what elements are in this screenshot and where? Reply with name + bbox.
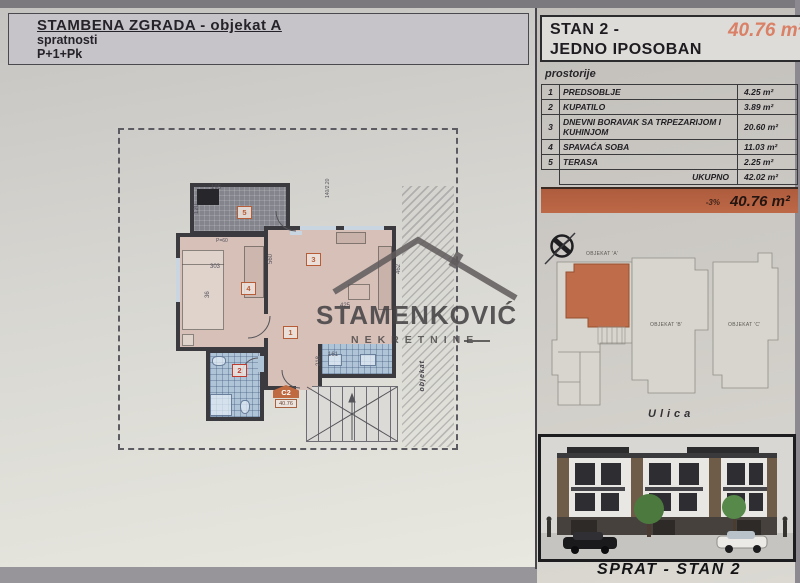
- room-name: TERASA: [560, 155, 738, 170]
- dim-label: 303: [210, 264, 220, 270]
- unit-title-box: STAN 2 - JEDNO IPOSOBAN 40.76 m²: [540, 15, 800, 62]
- table-row: 2 KUPATILO 3.89 m²: [542, 100, 798, 115]
- discount-percent: -3%: [706, 198, 720, 207]
- building-render-drawing: [541, 437, 793, 559]
- total-label: UKUPNO: [560, 170, 738, 185]
- unit-area-highlight: 40.76 m²: [728, 20, 800, 42]
- badge-living: 3: [306, 253, 321, 266]
- dim-label: 195: [211, 185, 221, 191]
- scanned-floor-plan-page: STAMBENA ZGRADA - objekat A spratnosti P…: [0, 0, 800, 583]
- dim-label: 140/2.20: [325, 179, 331, 198]
- window-bedroom: [176, 258, 180, 302]
- dim-label: 218: [316, 356, 322, 366]
- room-area: 3.89 m²: [738, 100, 798, 115]
- building-title: STAMBENA ZGRADA - objekat A: [37, 17, 528, 34]
- room-name: DNEVNI BORAVAK SA TRPEZARIJOM I KUHINJOM: [560, 115, 738, 140]
- dim-label: P=60: [216, 238, 228, 244]
- discounted-area: 40.76 m²: [730, 193, 790, 210]
- total-area: 42.02 m²: [738, 170, 798, 185]
- dim-label: 120: [194, 204, 200, 214]
- total-spacer: [542, 170, 560, 185]
- building-header: STAMBENA ZGRADA - objekat A spratnosti P…: [8, 13, 529, 65]
- nightstand: [182, 334, 194, 346]
- table-row: 4 SPAVAĆA SOBA 11.03 m²: [542, 140, 798, 155]
- room-num: 5: [542, 155, 560, 170]
- room-area: 11.03 m²: [738, 140, 798, 155]
- room-num: 3: [542, 115, 560, 140]
- site-label-building-b: OBJEKAT 'B': [650, 322, 682, 328]
- room-area: 20.60 m²: [738, 115, 798, 140]
- unit-title-line2: JEDNO IPOSOBAN: [550, 40, 800, 60]
- bed: [182, 250, 224, 330]
- dim-label: 462: [396, 264, 402, 274]
- watermark-dash: [464, 340, 490, 342]
- dim-label: 36: [205, 291, 211, 298]
- room-num: 2: [542, 100, 560, 115]
- street-label: Ulica: [648, 408, 694, 420]
- rooms-table: 1 PREDSOBLJE 4.25 m² 2 KUPATILO 3.89 m² …: [541, 84, 798, 185]
- rooms-section-label: prostorije: [545, 68, 596, 80]
- sink: [212, 356, 226, 366]
- window-living-1: [300, 226, 336, 230]
- dim-label: 560: [268, 254, 274, 264]
- badge-terrace: 5: [237, 206, 252, 219]
- sofa: [378, 246, 392, 310]
- building-subtitle: spratnosti: [37, 34, 528, 48]
- panel-divider-line: [535, 8, 537, 569]
- table-row: 3 DNEVNI BORAVAK SA TRPEZARIJOM I KUHINJ…: [542, 115, 798, 140]
- footer-caption: SPRAT - STAN 2: [540, 561, 798, 579]
- bathroom-door-opening: [258, 356, 264, 372]
- room-name: KUPATILO: [560, 100, 738, 115]
- room-name: SPAVAĆA SOBA: [560, 140, 738, 155]
- room-area: 2.25 m²: [738, 155, 798, 170]
- scan-edge-bottom: [0, 567, 537, 583]
- building-render-image: [538, 434, 796, 562]
- table: [348, 284, 370, 300]
- window-living-2: [344, 226, 384, 230]
- side-vertical-text: objekat: [419, 360, 426, 392]
- armchair: [336, 232, 366, 244]
- table-row: 5 TERASA 2.25 m²: [542, 155, 798, 170]
- terrace-door-opening: [290, 231, 302, 235]
- site-label-building-c: OBJEKAT 'C': [728, 322, 761, 328]
- kitchen-stove: [360, 354, 376, 366]
- site-label-building-a: OBJEKAT 'A': [586, 251, 618, 257]
- shower: [210, 394, 232, 416]
- entrance-door-opening: [296, 386, 312, 390]
- room-num: 4: [542, 140, 560, 155]
- bedroom-door-opening: [262, 314, 270, 338]
- room-area: 4.25 m²: [738, 85, 798, 100]
- toilet: [240, 400, 250, 414]
- chimney-shaft: [197, 189, 219, 205]
- badge-hall: 1: [283, 326, 298, 339]
- building-floors: P+1+Pk: [37, 48, 528, 62]
- room-num: 1: [542, 85, 560, 100]
- staircase: [306, 386, 398, 442]
- badge-bathroom: 2: [232, 364, 247, 377]
- table-total-row: UKUPNO 42.02 m²: [542, 170, 798, 185]
- unit-code-area: 40.76: [275, 399, 297, 408]
- dim-label: 161: [328, 352, 338, 358]
- discount-bar: -3% 40.76 m²: [541, 187, 798, 213]
- scan-edge-top: [0, 0, 800, 8]
- table-row: 1 PREDSOBLJE 4.25 m²: [542, 85, 798, 100]
- badge-bedroom: 4: [241, 282, 256, 295]
- room-name: PREDSOBLJE: [560, 85, 738, 100]
- adjacent-section-hatch: [402, 186, 454, 447]
- dim-label: 425: [340, 303, 350, 309]
- room-hall: [264, 344, 322, 390]
